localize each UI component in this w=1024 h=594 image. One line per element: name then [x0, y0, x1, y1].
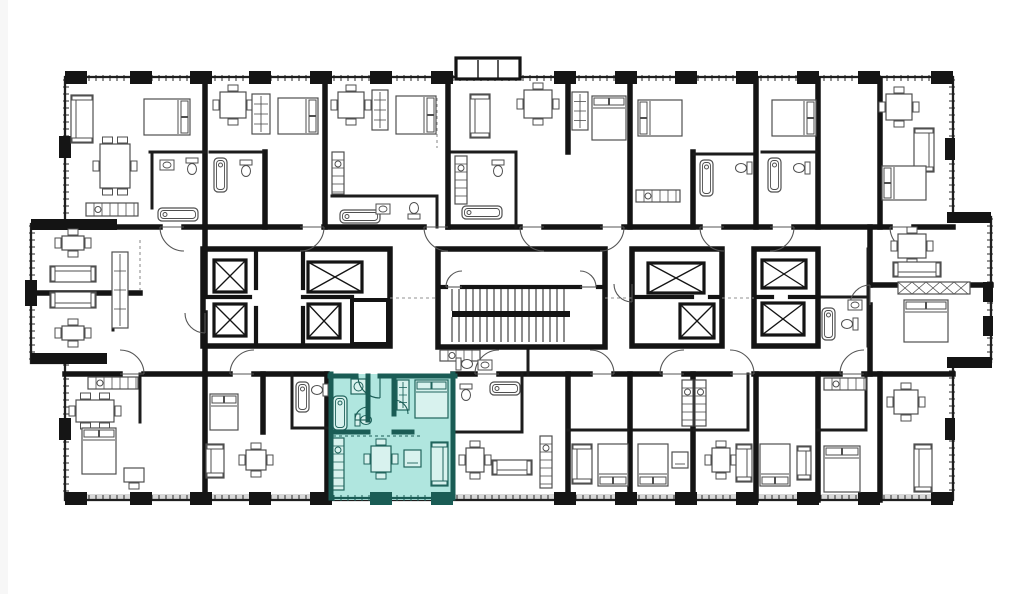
- column: [249, 492, 271, 505]
- kitchen-counter-icon: [824, 378, 866, 390]
- staircase-icon: [452, 289, 570, 342]
- sofa-icon: [914, 128, 934, 172]
- column: [797, 492, 819, 505]
- wall: [329, 372, 334, 501]
- table-icon: [246, 450, 266, 470]
- sofa-icon: [572, 444, 592, 484]
- sofa-icon: [914, 444, 932, 492]
- column: [675, 71, 697, 84]
- column: [65, 492, 87, 505]
- bathtub-icon: [158, 208, 198, 221]
- wall: [262, 149, 268, 230]
- toilet-icon: [410, 203, 419, 214]
- wall: [565, 371, 571, 503]
- floor-plan-svg: [0, 0, 1024, 594]
- shaft: [352, 300, 388, 344]
- column: [190, 71, 212, 84]
- door-swing-icon: [446, 271, 462, 287]
- wall: [521, 373, 524, 434]
- column: [615, 71, 637, 84]
- column: [858, 492, 880, 505]
- wall: [515, 151, 518, 229]
- column: [431, 71, 453, 84]
- door-swing-icon: [580, 271, 596, 287]
- table-icon: [466, 448, 484, 472]
- wall: [627, 76, 633, 230]
- wall: [454, 431, 524, 434]
- interior-walls: [28, 76, 994, 503]
- wall: [451, 151, 518, 154]
- armchair-icon: [404, 450, 421, 467]
- toilet-icon: [242, 166, 251, 177]
- wall: [392, 430, 415, 435]
- column: [945, 138, 955, 160]
- balcony-protrusion: [456, 58, 520, 79]
- door-swing-icon: [120, 350, 144, 374]
- column: [858, 71, 880, 84]
- wall: [817, 296, 870, 299]
- wall: [209, 151, 264, 154]
- wall: [321, 224, 427, 230]
- wall: [817, 429, 868, 432]
- table-icon: [712, 448, 730, 472]
- wall: [378, 374, 458, 379]
- wall: [867, 248, 870, 348]
- wall: [149, 151, 207, 154]
- wall: [445, 76, 451, 230]
- wall: [567, 429, 630, 432]
- wall: [260, 371, 266, 435]
- toilet-icon: [794, 164, 805, 173]
- wall: [141, 371, 233, 377]
- sink-icon: [848, 300, 862, 310]
- column: [554, 71, 576, 84]
- wall: [753, 76, 759, 230]
- floorplan-canvas: [0, 0, 1024, 594]
- wall: [151, 151, 154, 210]
- door-swing-icon: [660, 350, 684, 374]
- kitchen-counter-icon: [636, 190, 680, 202]
- wall-band: [31, 353, 107, 364]
- column: [59, 418, 71, 440]
- wall: [139, 373, 142, 424]
- table-icon: [886, 94, 912, 120]
- column: [370, 71, 392, 84]
- wall: [721, 224, 773, 230]
- column: [797, 71, 819, 84]
- wall: [460, 285, 582, 289]
- column: [25, 280, 37, 306]
- column: [983, 282, 993, 302]
- wall-band: [947, 357, 992, 368]
- kitchen-counter-icon: [695, 380, 706, 426]
- column: [310, 71, 332, 84]
- column: [615, 492, 637, 505]
- armchair-icon: [672, 452, 688, 468]
- wall: [611, 371, 663, 377]
- wall: [291, 427, 329, 430]
- wall: [62, 371, 123, 377]
- wall: [527, 346, 530, 376]
- wall: [596, 285, 607, 289]
- highlighted-apartment[interactable]: [328, 372, 458, 506]
- toilet-icon: [312, 386, 323, 395]
- column: [931, 71, 953, 84]
- sink-icon: [478, 360, 492, 370]
- table-icon: [524, 90, 552, 118]
- column: [249, 71, 271, 84]
- wall: [788, 295, 820, 299]
- bathtub-icon: [462, 206, 502, 219]
- door-swing-icon: [730, 350, 754, 374]
- kitchen-counter-icon: [332, 152, 344, 194]
- sofa-icon: [470, 94, 490, 138]
- column: [431, 492, 453, 505]
- elevator-cores: [201, 247, 820, 348]
- door-swing-icon: [840, 350, 864, 374]
- table-icon: [62, 236, 84, 250]
- sofa-icon: [71, 95, 93, 143]
- toilet-icon: [842, 320, 853, 329]
- wall: [451, 372, 456, 501]
- wall: [301, 306, 305, 348]
- door-swing-icon: [160, 227, 184, 251]
- wall: [329, 430, 371, 435]
- column: [554, 492, 576, 505]
- wall: [877, 371, 883, 503]
- wall: [322, 76, 328, 230]
- door-swing-icon: [230, 350, 254, 374]
- toilet-icon: [462, 360, 473, 369]
- wall: [541, 224, 603, 230]
- column: [130, 71, 152, 84]
- wall: [693, 153, 754, 156]
- desk-icon: [124, 468, 144, 482]
- wall: [708, 295, 724, 299]
- column: [130, 492, 152, 505]
- column: [59, 136, 71, 158]
- wall: [681, 371, 733, 377]
- stair-landing: [452, 311, 570, 317]
- sofa-icon: [50, 266, 96, 282]
- wall: [753, 371, 759, 503]
- sink-icon: [376, 204, 390, 214]
- table-icon: [338, 92, 364, 118]
- wall: [877, 76, 883, 230]
- table-icon: [898, 234, 926, 258]
- table-icon: [220, 92, 246, 118]
- wall: [301, 247, 305, 290]
- wall: [496, 371, 593, 377]
- column: [190, 492, 212, 505]
- sofa-icon: [736, 444, 752, 482]
- wall: [436, 195, 439, 229]
- wall: [301, 295, 354, 299]
- wall: [366, 374, 371, 423]
- bathtub-icon: [340, 210, 380, 223]
- table-icon: [371, 446, 391, 472]
- kitchen-counter-icon: [682, 380, 693, 426]
- wall: [331, 195, 439, 198]
- toilet-icon: [188, 164, 197, 175]
- kitchen-counter-icon: [88, 377, 138, 389]
- table-icon: [62, 326, 84, 340]
- sofa-icon: [893, 262, 941, 277]
- wall: [752, 295, 774, 299]
- wall: [181, 224, 303, 230]
- wall: [202, 371, 208, 503]
- column: [675, 492, 697, 505]
- column: [983, 316, 993, 336]
- edge-strip: [0, 0, 8, 594]
- sink-icon: [160, 160, 174, 170]
- toilet-icon: [736, 164, 747, 173]
- wall: [633, 429, 692, 432]
- wall: [291, 373, 294, 430]
- table-icon: [100, 144, 130, 188]
- table-icon: [894, 390, 918, 414]
- door-swing-icon: [590, 350, 614, 374]
- column: [65, 71, 87, 84]
- wall: [761, 151, 818, 154]
- wall: [630, 295, 694, 299]
- toilet-icon: [494, 166, 503, 177]
- column: [931, 492, 953, 505]
- wall: [565, 76, 571, 155]
- column: [370, 492, 392, 505]
- wall: [201, 295, 252, 299]
- toilet-icon: [462, 390, 471, 401]
- wall: [254, 247, 258, 290]
- wall: [861, 371, 956, 377]
- wall-band: [947, 212, 991, 223]
- sofa-icon: [431, 442, 448, 486]
- sofa-icon: [492, 460, 532, 475]
- wall: [445, 224, 523, 230]
- table-icon: [76, 400, 114, 422]
- wall: [815, 371, 821, 503]
- column: [736, 492, 758, 505]
- wall: [747, 373, 750, 432]
- sofa-icon: [50, 292, 96, 308]
- wall: [911, 224, 956, 230]
- wall: [693, 429, 750, 432]
- column: [736, 71, 758, 84]
- wall: [254, 306, 258, 348]
- closet-icon: [898, 282, 970, 294]
- wall: [690, 149, 696, 230]
- column: [945, 418, 955, 440]
- wall: [751, 371, 843, 377]
